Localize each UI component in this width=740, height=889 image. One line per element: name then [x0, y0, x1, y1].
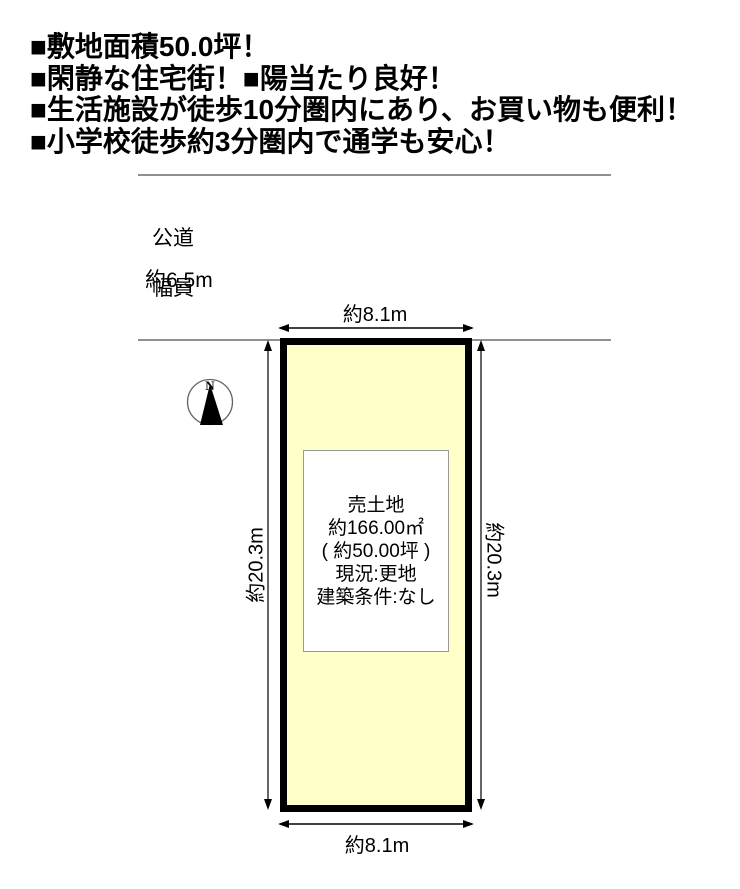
info-line-building-condition: 建築条件:なし	[316, 586, 435, 609]
sales-copy-line: ■小学校徒歩約3分圏内で通学も安心！	[30, 126, 693, 158]
compass-icon: N	[186, 377, 234, 427]
dimension-label-width-top: 約8.1m	[343, 298, 407, 327]
info-line-area-sqm: 約166.00㎡	[328, 517, 424, 540]
info-line-current-state: 現況:更地	[335, 563, 416, 586]
road-width-value: 約6.5m	[145, 264, 213, 294]
plot-info-box: 売土地 約166.00㎡ ( 約50.00坪 ) 現況:更地 建築条件:なし	[303, 450, 449, 652]
dimension-label-width-bottom: 約8.1m	[345, 829, 409, 858]
info-line-sale-type: 売土地	[347, 494, 404, 517]
sales-copy-line: ■閑静な住宅街！■陽当たり良好！	[30, 63, 693, 95]
dimension-label-depth-right: 約20.3m	[482, 522, 511, 598]
sales-copy-line: ■生活施設が徒歩10分圏内にあり、お買い物も便利！	[30, 94, 693, 126]
sales-copy: ■敷地面積50.0坪！ ■閑静な住宅街！■陽当たり良好！ ■生活施設が徒歩10分…	[30, 31, 693, 157]
dimension-label-depth-left: 約20.3m	[240, 527, 269, 603]
sales-copy-line: ■敷地面積50.0坪！	[30, 31, 693, 63]
compass-north-label: N	[205, 378, 215, 393]
road-name-label: 公道	[152, 226, 194, 251]
road-edge-top	[138, 174, 611, 176]
land-plot-diagram: ■敷地面積50.0坪！ ■閑静な住宅街！■陽当たり良好！ ■生活施設が徒歩10分…	[0, 0, 740, 889]
info-line-area-tsubo: ( 約50.00坪 )	[322, 540, 431, 563]
